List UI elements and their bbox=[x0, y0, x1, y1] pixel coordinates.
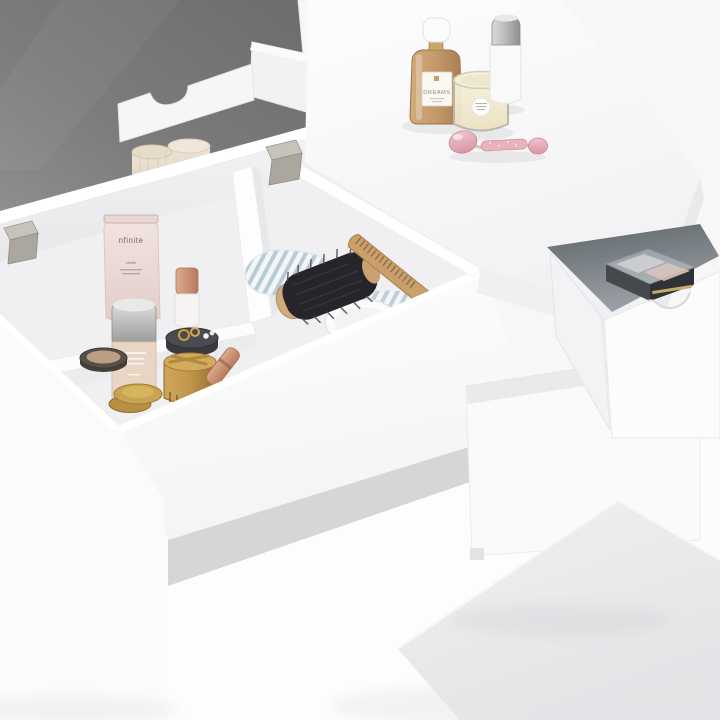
perfume-brand-text: DREAMS bbox=[423, 90, 451, 96]
perfume-cap bbox=[423, 18, 450, 42]
roller-handle bbox=[481, 139, 527, 151]
pearl-earring bbox=[203, 333, 209, 339]
perfume-highlight bbox=[416, 54, 422, 120]
cabinet-floor-shadow bbox=[450, 604, 670, 636]
dropper-cap bbox=[176, 268, 198, 294]
tube-brand-text-small: nfinite bbox=[126, 260, 137, 265]
cabinet-foot bbox=[470, 548, 484, 560]
dropper-bottle bbox=[175, 268, 199, 328]
perfume-crest bbox=[434, 76, 439, 81]
pearl-earring-2 bbox=[210, 331, 215, 336]
spray-bottle bbox=[490, 15, 521, 104]
tube-brand-text: nfinite bbox=[119, 236, 144, 245]
scene-canvas: nfinite nfinite bbox=[0, 0, 720, 720]
vanity-product-photo: nfinite nfinite bbox=[0, 0, 720, 720]
dropper-glass bbox=[175, 294, 199, 328]
powder-compact bbox=[80, 348, 127, 372]
lid-hinge-right bbox=[266, 140, 302, 185]
tube-crimp bbox=[104, 215, 158, 223]
spray-body bbox=[490, 42, 521, 104]
roller-head-small bbox=[529, 138, 548, 154]
